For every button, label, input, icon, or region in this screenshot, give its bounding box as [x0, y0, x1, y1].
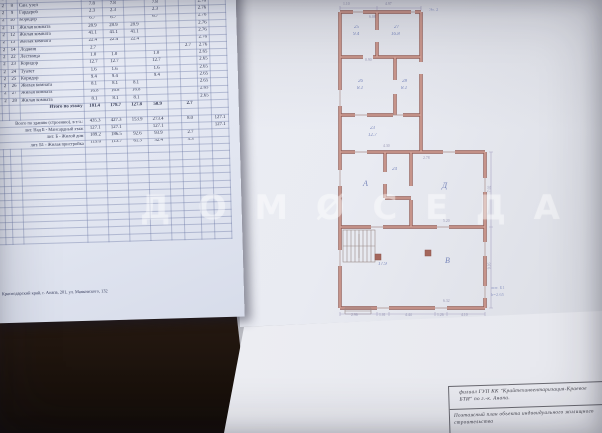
stamp-title: Поэтажный план объекта индивидуального ж…: [450, 405, 602, 429]
plan-label: 1.10: [343, 3, 350, 7]
floor-plan-walls: [325, 2, 530, 320]
plan-label: 28: [402, 79, 407, 84]
plan-label: 24: [392, 167, 397, 172]
plan-label: 7.02: [488, 186, 492, 193]
plan-label: 27: [394, 25, 399, 30]
plan-label: 26: [358, 79, 363, 84]
dimension-lines: [340, 6, 493, 316]
plan-label: 6.32: [443, 300, 450, 304]
plan-label: 8.1: [357, 86, 363, 91]
plan-label: 9.16: [488, 263, 492, 270]
empty-grid-rows: [0, 143, 232, 244]
plan-label: 17.9: [378, 262, 387, 267]
plan-label: 23: [370, 126, 375, 131]
plan-label: 1.26: [437, 314, 444, 318]
photo-of-documents: 259.42716.8268.1288.12312.724АД17.9ВЭт. …: [0, 0, 602, 433]
plan-label: 2.78: [423, 157, 430, 161]
column: [425, 250, 431, 256]
plan-label: 4.44: [405, 314, 412, 318]
plan-label: 4.30: [383, 145, 390, 149]
plan-label: 25: [354, 25, 359, 30]
plan-label: В: [445, 257, 450, 265]
plan-label: Д: [442, 182, 447, 190]
plan-label: 6.08: [369, 16, 376, 20]
floor-plan-drawing: 259.42716.8268.1288.12312.724АД17.9ВЭт. …: [325, 2, 530, 320]
explication-table: 1 2 3 4 5 6 7 8 9 10 11 12 Б: [0, 0, 232, 245]
plan-label: 5.20: [443, 220, 450, 224]
plan-label: А: [363, 180, 368, 188]
plan-label: h=2.65: [491, 293, 504, 298]
plan-label: 4.10: [461, 314, 468, 318]
left-page-explication: 1 2 3 4 5 6 7 8 9 10 11 12 Б: [0, 0, 245, 323]
plan-label: 1.01: [379, 314, 386, 318]
plan-label: 9.4: [353, 32, 359, 37]
plan-label: Эт. 2: [429, 8, 438, 13]
stamp-box: филиал ГУП КК "Крайтехинвентаризация-Кра…: [448, 381, 602, 433]
plan-label: 8.1: [401, 86, 407, 91]
room-rows: Б 2 7 Лестница 6.9 6.9 6.9 2.76: [0, 0, 228, 106]
plan-label: 16.8: [391, 32, 400, 37]
plan-label: 0.90: [365, 59, 372, 63]
plan-label: 4.97: [385, 3, 392, 7]
staircase: [343, 230, 375, 314]
plan-label: 2.96: [351, 314, 358, 318]
plan-label: 12.7: [368, 133, 377, 138]
column: [375, 254, 381, 260]
address-footer: Краснодарский край, г. Анапа, 201, ул. М…: [2, 288, 108, 296]
plan-label: лит. Б1: [491, 286, 505, 291]
